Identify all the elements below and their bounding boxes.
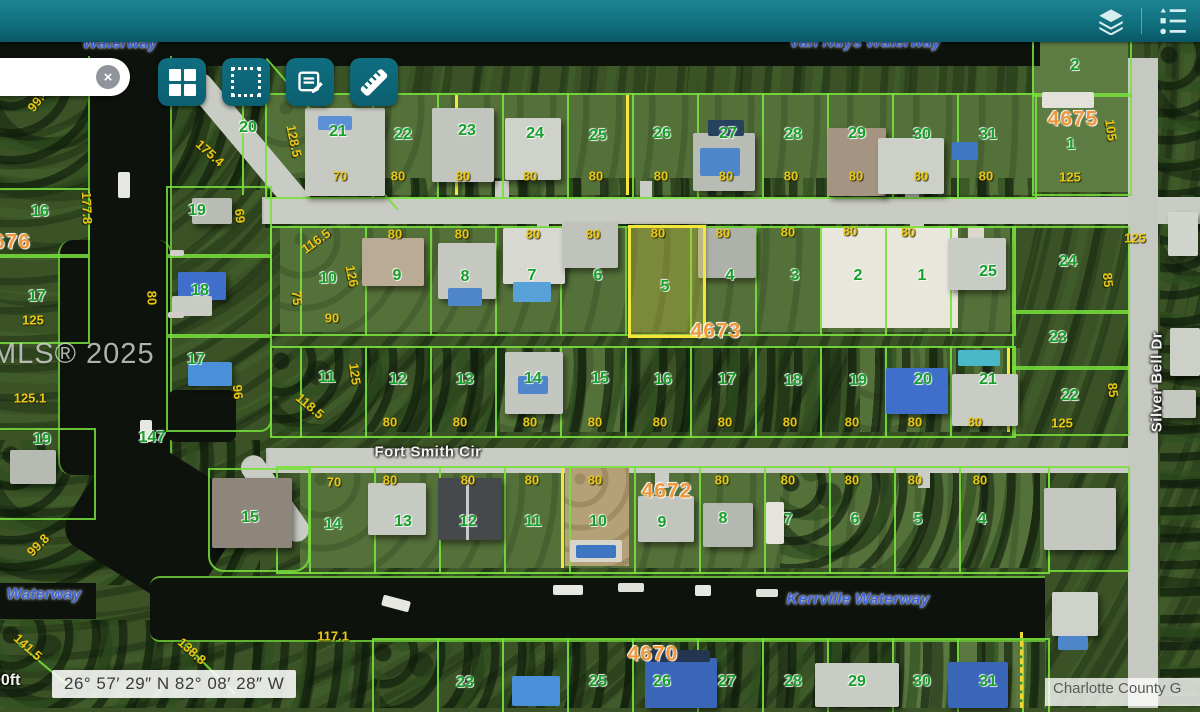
parcel-outline	[1012, 226, 1130, 314]
header-divider	[1141, 8, 1142, 34]
dimension-label: 80	[784, 170, 798, 183]
lot-number-label[interactable]: 6	[594, 268, 603, 284]
dimension-label: 96	[231, 384, 245, 400]
lot-number-label[interactable]: 23	[456, 675, 474, 691]
waterway-label: Waterway	[7, 587, 81, 603]
lot-number-label[interactable]: 5	[914, 512, 923, 528]
pool	[448, 288, 482, 306]
lot-number-label[interactable]: 14	[324, 517, 342, 533]
lot-number-label[interactable]: 21	[979, 372, 997, 388]
dimension-label: 80	[908, 416, 922, 429]
dimension-label: 80	[461, 474, 475, 487]
lot-number-label[interactable]: 12	[389, 372, 407, 388]
dimension-label: 125.1	[14, 392, 47, 405]
dimension-label: 80	[719, 170, 733, 183]
dimension-label: 80	[388, 228, 402, 241]
dimension-label: 125	[347, 362, 363, 385]
dimension-label: 125	[22, 314, 44, 327]
lot-number-label[interactable]: 10	[589, 514, 607, 530]
lot-number-label[interactable]: 147	[139, 430, 166, 446]
dimension-label: 177.8	[80, 192, 94, 225]
lot-number-label[interactable]: 22	[1061, 388, 1079, 404]
dimension-label: 80	[716, 227, 730, 240]
mls-watermark: MLS® 2025	[0, 338, 155, 371]
dimension-label: 80	[525, 474, 539, 487]
lot-number-label[interactable]: 16	[31, 204, 49, 220]
lot-number-label[interactable]: 13	[394, 514, 412, 530]
lot-number-label[interactable]: 4	[978, 512, 987, 528]
dock	[170, 250, 184, 256]
lot-number-label[interactable]: 8	[461, 269, 470, 285]
lot-number-label[interactable]: 2	[854, 268, 863, 284]
marquee-select-icon	[231, 67, 261, 97]
tarp	[512, 676, 560, 706]
highlight-boundary	[1020, 632, 1023, 708]
lot-number-label[interactable]: 11	[319, 370, 336, 386]
dimension-label: 80	[901, 226, 915, 239]
boat	[618, 583, 644, 592]
lot-number-label[interactable]: 30	[913, 674, 931, 690]
lot-number-label[interactable]: 17	[187, 352, 205, 368]
lot-number-label[interactable]: 28	[784, 127, 802, 143]
dimension-label: 80	[588, 416, 602, 429]
dimension-label: 80	[783, 416, 797, 429]
dimension-label: 80	[383, 416, 397, 429]
lot-number-label[interactable]: 19	[33, 432, 51, 448]
boat	[695, 585, 711, 596]
shed	[1042, 92, 1094, 108]
dimension-label: 80	[145, 291, 158, 306]
lot-number-label[interactable]: 23	[458, 123, 476, 139]
block-number-label: 676	[0, 232, 31, 253]
lot-number-label[interactable]: 26	[653, 674, 671, 690]
dimension-label: 80	[914, 170, 928, 183]
lot-number-label[interactable]: 25	[979, 264, 997, 280]
dimension-label: 126	[343, 264, 360, 288]
street-name-label: Fort Smith Cir	[375, 445, 482, 460]
pool	[952, 142, 978, 160]
dimension-label: 80	[781, 226, 795, 239]
dimension-label: 80	[456, 170, 470, 183]
dimension-label: 80	[979, 170, 993, 183]
grid-layout-icon	[169, 69, 196, 96]
parcel-outline	[1012, 310, 1130, 370]
house-roof	[10, 450, 56, 484]
legend-list-icon[interactable]	[1154, 6, 1190, 36]
house-roof	[948, 238, 1006, 290]
block-number-label: 4672	[642, 481, 693, 502]
search-clear-button[interactable]: ×	[96, 65, 120, 89]
dimension-label: 80	[843, 225, 857, 238]
lot-number-label[interactable]: 12	[459, 514, 477, 530]
lot-number-label[interactable]: 4	[726, 268, 735, 284]
dimension-label: 75	[290, 290, 304, 306]
lot-number-label[interactable]: 18	[784, 373, 802, 389]
lot-number-label[interactable]: 24	[526, 126, 544, 142]
boat	[553, 585, 583, 595]
lot-number-label[interactable]: 22	[394, 127, 412, 143]
lot-number-label[interactable]: 27	[719, 126, 737, 142]
dimension-label: 125	[1059, 171, 1081, 184]
tree-cover	[1158, 40, 1200, 200]
dimension-label: 80	[908, 474, 922, 487]
dimension-label: 80	[526, 228, 540, 241]
coordinates-readout: 26° 57′ 29″ N 82° 08′ 28″ W	[52, 670, 296, 698]
dimension-label: 80	[845, 474, 859, 487]
house-roof	[1162, 390, 1196, 418]
dimension-label: 80	[383, 474, 397, 487]
lot-number-label[interactable]: 18	[191, 283, 209, 299]
notes-edit-icon	[296, 68, 324, 96]
rv-trailer	[766, 502, 784, 544]
dimension-label: 80	[453, 416, 467, 429]
parcel-outline	[1032, 38, 1132, 97]
dimension-label: 80	[653, 416, 667, 429]
lot-number-label[interactable]: 31	[979, 127, 997, 143]
road	[262, 197, 1200, 224]
dimension-label: 80	[651, 227, 665, 240]
lot-number-label[interactable]: 31	[979, 674, 997, 690]
pool	[1058, 636, 1088, 650]
dimension-label: 117.1	[317, 630, 349, 643]
lot-number-label[interactable]: 2	[1071, 58, 1080, 74]
lot-number-label[interactable]: 30	[913, 127, 931, 143]
lot-number-label[interactable]: 1	[918, 268, 927, 284]
lot-number-label[interactable]: 17	[28, 289, 46, 305]
boat	[118, 172, 130, 198]
lot-number-label[interactable]: 20	[239, 120, 257, 136]
dimension-label: 80	[523, 416, 537, 429]
layout-grid-button[interactable]	[158, 58, 206, 106]
parcel-line	[242, 95, 244, 195]
dimension-label: 90	[325, 312, 339, 325]
lot-number-label[interactable]: 8	[719, 511, 728, 527]
scale-bar-label: 00ft	[0, 672, 20, 690]
lot-number-label[interactable]: 10	[319, 271, 337, 287]
dimension-label: 69	[233, 208, 247, 224]
boat	[756, 589, 778, 597]
house-roof	[1044, 488, 1116, 550]
lot-number-label[interactable]: 17	[718, 372, 736, 388]
dimension-label: 80	[845, 416, 859, 429]
lot-number-label[interactable]: 29	[848, 126, 866, 142]
lot-number-label[interactable]: 6	[851, 512, 860, 528]
search-input[interactable]: ×	[0, 58, 130, 96]
lot-number-label[interactable]: 27	[718, 674, 736, 690]
house-roof	[1168, 212, 1198, 256]
dimension-label: 80	[968, 416, 982, 429]
lot-number-label[interactable]: 25	[589, 128, 607, 144]
block-number-label: 4670	[628, 644, 679, 665]
house-roof	[1052, 592, 1098, 636]
highlight-boundary	[561, 468, 564, 568]
header-bar	[0, 0, 1200, 42]
dimension-label: 125	[1124, 232, 1146, 245]
pool	[576, 545, 616, 558]
lot-number-label[interactable]: 29	[848, 674, 866, 690]
map-canvas[interactable]: 2021222324252627282930312110987654321252…	[0, 0, 1200, 708]
dimension-label: 105	[1103, 118, 1119, 141]
dimension-label: 80	[586, 228, 600, 241]
dimension-label: 85	[1106, 382, 1120, 398]
dimension-label: 85	[1101, 272, 1115, 288]
lot-number-label[interactable]: 14	[524, 371, 542, 387]
canal-water	[150, 576, 1045, 642]
lot-number-label[interactable]: 7	[528, 268, 537, 284]
measure-ruler-icon	[360, 68, 389, 97]
lot-number-label[interactable]: 7	[784, 512, 793, 528]
measure-ruler-button[interactable]	[350, 58, 398, 106]
dimension-label: 70	[327, 476, 341, 489]
dimension-label: 125	[1051, 417, 1073, 430]
lot-number-label[interactable]: 11	[525, 514, 542, 530]
lot-number-label[interactable]: 26	[653, 126, 671, 142]
house-roof	[1170, 328, 1200, 376]
house-roof	[703, 503, 753, 547]
house-roof	[878, 138, 944, 194]
lot-number-label[interactable]: 9	[658, 515, 667, 531]
lot-number-label[interactable]: 15	[241, 510, 259, 526]
block-number-label: 4673	[691, 321, 742, 342]
map-attribution: Charlotte County G	[1045, 678, 1200, 706]
lot-number-label[interactable]: 28	[784, 674, 802, 690]
dimension-label: 80	[715, 474, 729, 487]
lot-number-label[interactable]: 19	[849, 373, 867, 389]
lot-number-label[interactable]: 15	[591, 371, 609, 387]
dimension-label: 80	[718, 416, 732, 429]
lot-number-label[interactable]: 16	[654, 372, 672, 388]
dimension-label: 80	[781, 474, 795, 487]
lot-number-label[interactable]: 19	[188, 203, 206, 219]
dimension-label: 80	[589, 170, 603, 183]
lot-number-label[interactable]: 3	[791, 268, 800, 284]
pool	[958, 350, 1000, 366]
dock	[168, 312, 184, 318]
lot-number-label[interactable]: 13	[456, 372, 474, 388]
house-roof	[948, 662, 1008, 708]
waterway-label: Kerrville Waterway	[787, 592, 930, 608]
block-number-label: 4675	[1048, 109, 1099, 130]
street-name-label: Silver Bell Dr	[1150, 332, 1165, 432]
lot-number-label[interactable]: 24	[1059, 254, 1077, 270]
dimension-label: 80	[523, 170, 537, 183]
dimension-label: 80	[654, 170, 668, 183]
dimension-label: 80	[973, 474, 987, 487]
lot-number-label[interactable]: 25	[589, 674, 607, 690]
tree-cover	[1160, 195, 1200, 708]
dimension-label: 80	[391, 170, 405, 183]
marquee-select-button[interactable]	[222, 58, 270, 106]
dimension-label: 70	[333, 170, 347, 183]
pool	[513, 282, 551, 302]
highlight-boundary	[626, 95, 629, 195]
lot-number-label[interactable]: 1	[1067, 137, 1076, 153]
lot-number-label[interactable]: 21	[329, 124, 347, 140]
lot-number-label[interactable]: 20	[914, 372, 932, 388]
lot-number-label[interactable]: 23	[1049, 330, 1067, 346]
notes-edit-button[interactable]	[286, 58, 334, 106]
lot-number-label[interactable]: 9	[393, 268, 402, 284]
dimension-label: 80	[455, 228, 469, 241]
dimension-label: 80	[849, 170, 863, 183]
lot-number-label[interactable]: 5	[661, 279, 670, 295]
layers-icon[interactable]	[1093, 6, 1129, 36]
dimension-label: 80	[588, 474, 602, 487]
